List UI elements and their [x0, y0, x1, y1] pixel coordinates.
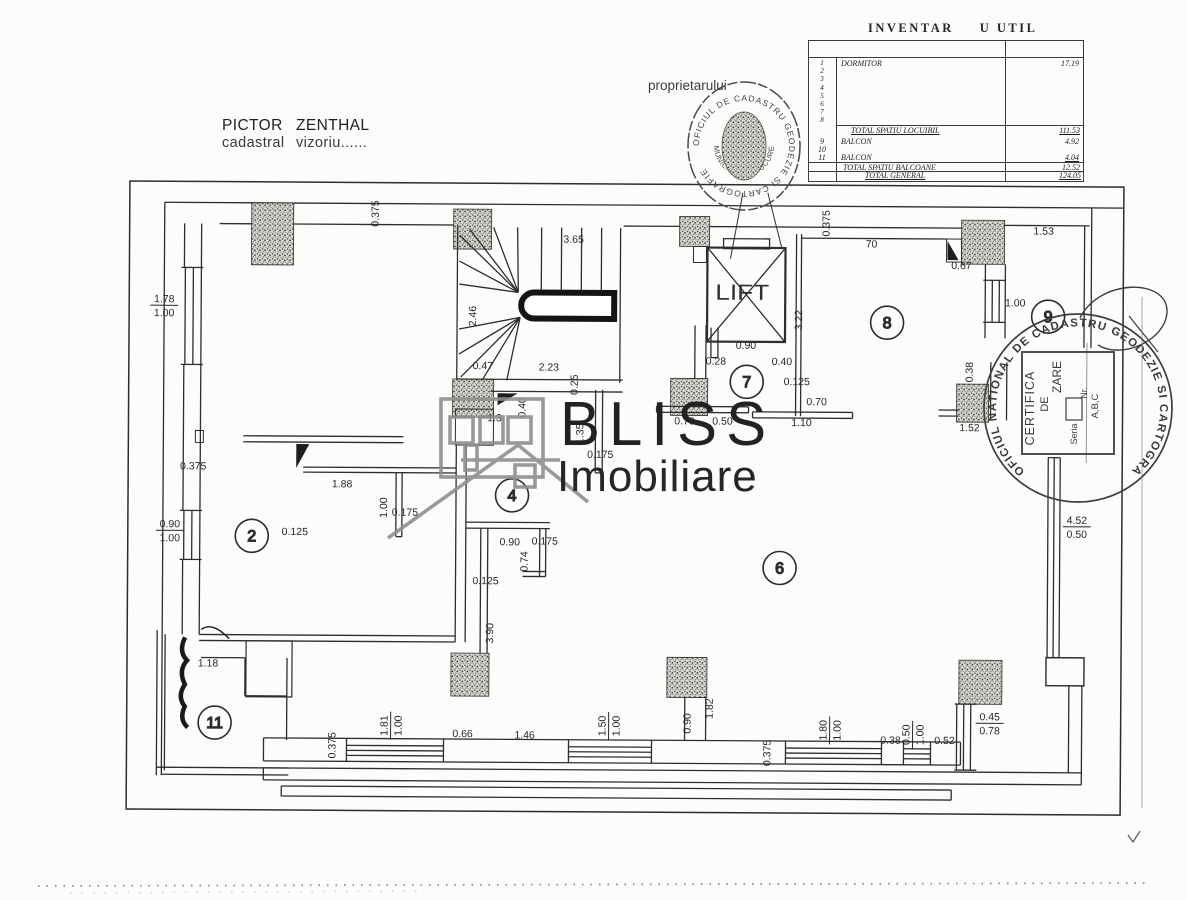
window [180, 510, 202, 559]
dimension-label: 0.45 [979, 711, 1000, 723]
bliss-logo-subtitle: Imobiliare [557, 452, 758, 502]
dimension-label: 1.00 [1005, 297, 1026, 309]
dimension-label: 6 [775, 560, 784, 577]
dimension-label: 3.22 [793, 310, 805, 331]
dimension-label: 1.78 [154, 293, 175, 305]
dimension-label: 0.38 [880, 735, 901, 747]
dimension-label: 0.52 [934, 735, 955, 747]
window [1047, 458, 1060, 658]
stair-handrail [521, 292, 614, 319]
dimension-label: 1.00 [154, 307, 175, 319]
dimension-label: 1.88 [332, 478, 353, 490]
balcony-11 [156, 627, 289, 776]
room-number-circle: 4 [495, 479, 528, 512]
stamp-box-text: ZARE [1050, 361, 1064, 393]
dimension-label: 0.375 [761, 740, 773, 767]
dimension-fraction: 4.520.50 [1063, 515, 1091, 541]
wall-pier [667, 657, 707, 697]
dimension-label: 1.80 [818, 720, 830, 741]
bottom-wall [263, 738, 960, 765]
window [181, 267, 204, 364]
dimension-label: 0.125 [784, 376, 811, 388]
dimension-label: 1.52 [959, 422, 980, 434]
dimension-label: 0.375 [370, 200, 382, 227]
dimension-label: 0.175 [532, 535, 559, 547]
dimension-fraction: 0.450.78 [976, 711, 1004, 737]
dimension-label: 0.90 [682, 713, 694, 734]
room-number-circle: 11 [198, 706, 231, 739]
dimension-label: 0.40 [772, 356, 793, 368]
dimension-fraction: 1.801.00 [818, 716, 844, 744]
room-numbers: 24678911 [198, 295, 1065, 744]
dimension-label: 0.28 [706, 356, 727, 368]
dimension-label: 0.78 [979, 725, 1000, 737]
dimension-label: 2.46 [467, 306, 479, 327]
lift-label: LIFT [715, 280, 769, 305]
dimension-label: 0.47 [473, 360, 494, 372]
dimension-label: 0.38 [964, 362, 976, 383]
room-number-circle: 6 [763, 551, 796, 584]
dimension-label: 11 [206, 715, 223, 732]
room-number-circle: 2 [235, 519, 268, 552]
dimension-label: 1.00 [160, 532, 181, 544]
stamp-box-text: DE [1039, 396, 1051, 411]
dimension-fraction: 1.501.00 [597, 712, 623, 740]
dimension-label: 2 [247, 528, 256, 545]
window [954, 704, 976, 770]
dimension-label: 1.00 [611, 716, 623, 737]
dimension-label: 1.82 [704, 698, 716, 719]
dimension-fraction: 0.901.00 [156, 518, 184, 544]
dimension-label: 0.90 [736, 340, 757, 352]
dimension-label: 1.00 [393, 715, 405, 736]
wall-pier [959, 660, 1002, 704]
dimension-label: 4 [508, 488, 517, 505]
bottom-balcony [263, 768, 1081, 801]
dimension-label: 1.10 [791, 417, 812, 429]
stamp-cadastru-bucuresti: OFICIUL DE CADASTRU GEODEZIE SI CARTOGRA… [0, 0, 800, 210]
dimension-label: 0.375 [326, 732, 338, 759]
dimension-label: 0.67 [951, 260, 972, 272]
dimension-label: 2.23 [539, 362, 560, 374]
dimension-label: 1.53 [1033, 226, 1054, 238]
dimension-label: 0.50 [1067, 529, 1088, 541]
window [983, 264, 1005, 338]
dimension-label: 0.50 [901, 724, 913, 745]
dimension-label: 0.66 [452, 728, 473, 740]
ink-blot [181, 637, 189, 727]
stamp-inner-text: MUNICIPIULUI BUCURESTI [0, 0, 776, 178]
wall-pier [251, 203, 293, 265]
door-swing [296, 444, 309, 468]
stamp-box-text: Seria [1069, 423, 1079, 444]
wall-pier [451, 653, 489, 696]
door-swing [947, 241, 958, 260]
room-number-circle: 8 [870, 306, 903, 339]
bliss-logo-wordmark: BLISS [560, 388, 775, 460]
dimension-label: 1.46 [514, 729, 535, 741]
stamp-box-text: CERTIFICA [1023, 371, 1037, 446]
dimension-label: 1.00 [832, 720, 844, 741]
wall-pier [680, 216, 710, 246]
wall-pier [454, 209, 492, 249]
dimension-label: 3.65 [563, 234, 584, 246]
dimension-fraction: 1.811.00 [379, 712, 405, 740]
dimension-fraction: 0.501.00 [900, 721, 926, 749]
dimension-label: 0.175 [392, 507, 419, 519]
dimension-label: 0.90 [499, 536, 520, 548]
dimension-label: 0.70 [806, 396, 827, 408]
svg-text:MUNICIPIULUI BUCURESTI: MUNICIPIULUI BUCURESTI [0, 0, 776, 178]
dimension-label: 0.74 [519, 551, 531, 572]
wall-pier [961, 220, 1004, 264]
dimension-label: 1.00 [378, 497, 390, 518]
scanned-floor-plan-page: PICTOR ZENTHAL cadastral vizoriu...... p… [0, 0, 1187, 900]
dimension-label: 70 [866, 239, 878, 251]
stamp-box-text: A,B,C [1090, 393, 1101, 418]
dimension-label: 1.81 [379, 715, 391, 736]
ink-mark [201, 627, 229, 639]
dimension-label: 1.00 [915, 724, 927, 745]
dimension-label: 0.375 [821, 210, 833, 237]
dimension-label: 0.125 [472, 575, 499, 587]
dimension-label: 0.375 [180, 460, 207, 472]
dimension-label: 0.125 [282, 526, 309, 538]
dimension-label: 0.90 [160, 518, 181, 530]
dimension-label: 8 [883, 315, 892, 332]
dimension-label: 1.50 [597, 716, 609, 737]
stamp-box-text: Nr. [1079, 387, 1089, 399]
dimension-label: 3.90 [484, 623, 496, 644]
dimension-label: 1.18 [198, 657, 219, 669]
dimension-label: 4.52 [1067, 515, 1088, 527]
